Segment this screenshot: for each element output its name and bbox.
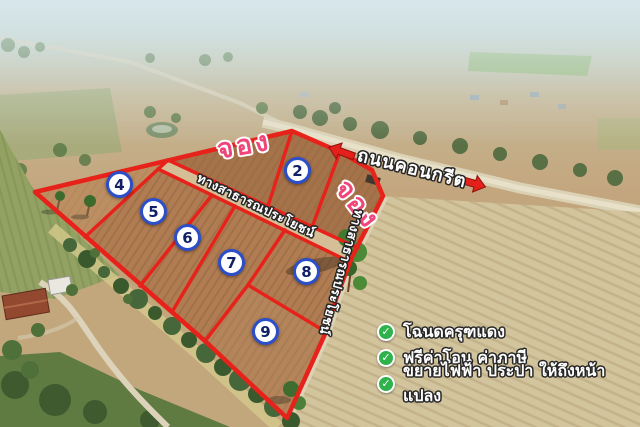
feature-row: ✓ โฉนดครุฑแดง: [377, 322, 640, 342]
plot-number-badge-9: 9: [252, 318, 279, 345]
land-listing-aerial-photo: จอง จอง ถนนคอนกรีต ทางสาธารณประโยชน์ ทาง…: [0, 0, 640, 427]
plot-number-badge-7: 7: [218, 249, 245, 276]
plot-number-badge-4: 4: [106, 171, 133, 198]
check-icon: ✓: [377, 375, 395, 393]
features-list: ✓ โฉนดครุฑแดง ✓ ฟรีค่าโอน ค่าภาษี ✓ ขยาย…: [377, 322, 640, 394]
feature-row: ✓ ขยายไฟฟ้า ประปา ให้ถึงหน้าแปลง: [377, 374, 640, 394]
palm-tree: [55, 191, 65, 201]
palm-tree: [84, 195, 96, 207]
check-icon: ✓: [377, 323, 395, 341]
plot-number-badge-2: 2: [284, 157, 311, 184]
atmospheric-haze: [0, 0, 640, 145]
feature-text: ขยายไฟฟ้า ประปา ให้ถึงหน้าแปลง: [403, 359, 640, 409]
check-icon: ✓: [377, 349, 395, 367]
plot-number-badge-8: 8: [293, 258, 320, 285]
plot-number-badge-6: 6: [174, 224, 201, 251]
feature-text: โฉนดครุฑแดง: [403, 320, 505, 345]
plot-number-badge-5: 5: [140, 198, 167, 225]
